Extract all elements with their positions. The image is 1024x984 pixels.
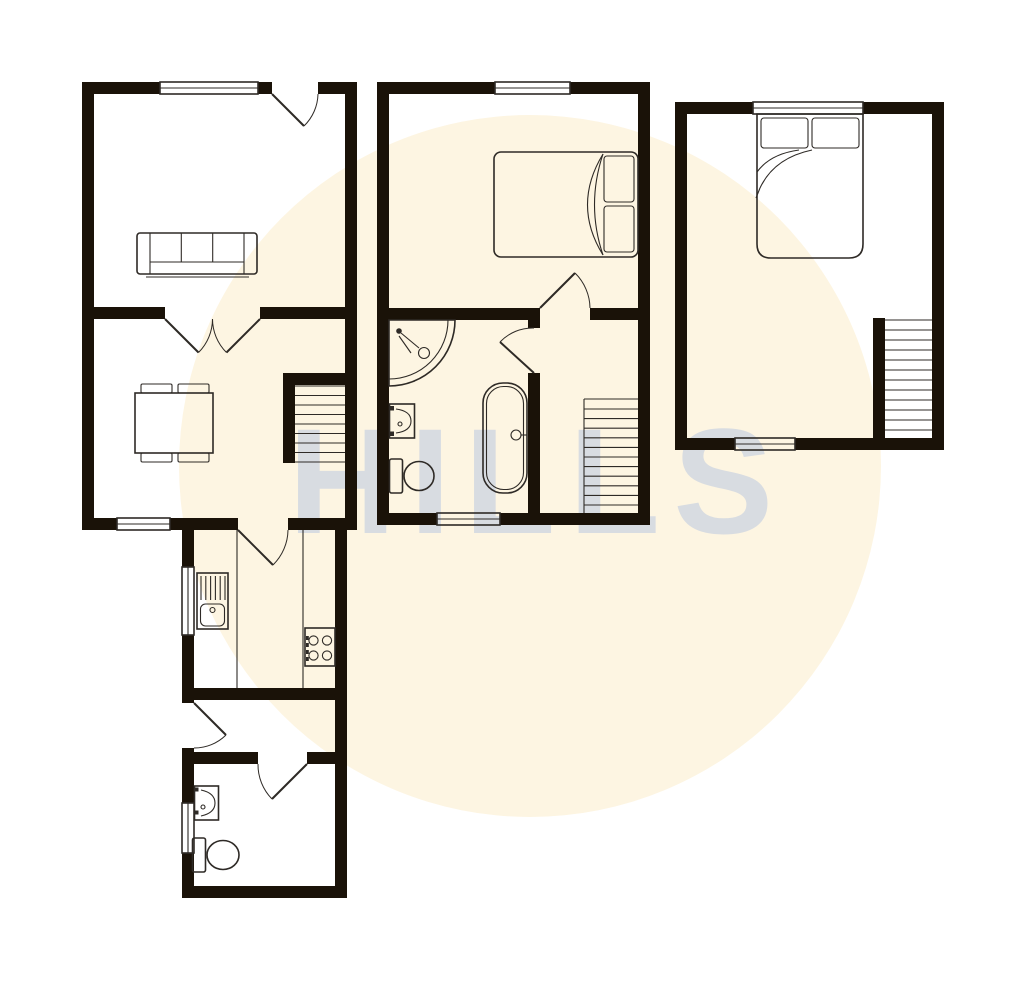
wall-segment [170, 518, 238, 530]
window [495, 82, 570, 94]
floor-plan-canvas: HILLS [0, 0, 1024, 984]
door [272, 94, 318, 126]
wall-segment [863, 102, 944, 114]
wall-segment [377, 82, 495, 94]
wall-segment [283, 373, 345, 385]
wall-segment [675, 102, 687, 450]
wall-segment [182, 752, 258, 764]
wall-segment [638, 82, 650, 525]
wall-segment [82, 518, 117, 530]
wall-segment [528, 373, 540, 513]
shower-head-icon [396, 328, 402, 334]
wall-segment [182, 688, 347, 700]
wall-segment [182, 530, 194, 567]
toilet [193, 838, 240, 872]
wall-segment [389, 308, 528, 320]
wall-segment [932, 102, 944, 450]
door [258, 764, 307, 799]
wall-segment [345, 82, 357, 530]
window [753, 102, 863, 114]
staircase [885, 320, 932, 430]
door [194, 703, 226, 748]
wall-segment [795, 438, 944, 450]
wall-segment [675, 438, 735, 450]
window [117, 518, 170, 530]
wall-segment [528, 308, 540, 328]
wall-segment [590, 308, 638, 320]
wall-segment [94, 307, 165, 319]
wall-segment [258, 82, 272, 94]
wall-segment [500, 513, 638, 525]
window [160, 82, 258, 94]
wall-segment [182, 886, 347, 898]
wall-segment [377, 82, 389, 525]
wall-segment [283, 385, 295, 463]
wc-sink [195, 786, 219, 820]
wall-segment [260, 307, 345, 319]
wall-segment [335, 530, 347, 898]
window [182, 567, 194, 635]
wall-segment [873, 318, 885, 438]
wall-segment [389, 513, 437, 525]
wall-segment [82, 82, 94, 530]
wall-segment [307, 752, 347, 764]
wall-segment [288, 518, 345, 530]
